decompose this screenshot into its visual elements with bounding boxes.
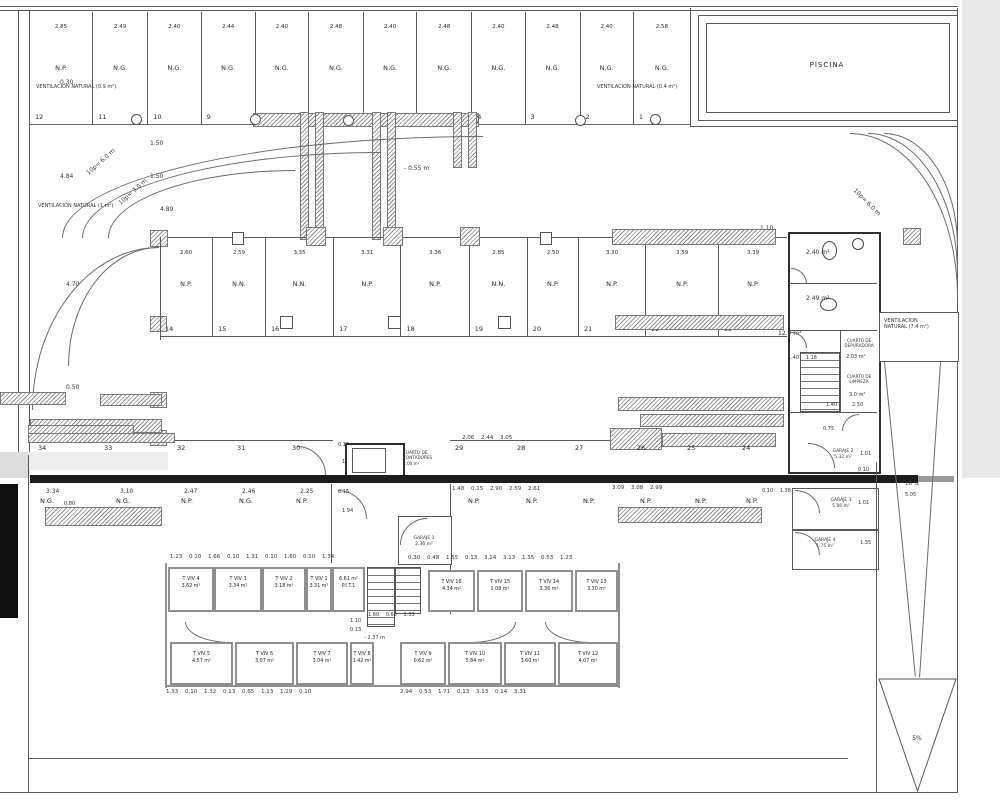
- stall-dim: 2.48: [309, 24, 363, 30]
- row3-number-28: 28: [517, 445, 525, 452]
- parking-space-7: 2.48N.G.7: [308, 12, 363, 124]
- room-label: T VIV 23.18 m²: [275, 577, 294, 591]
- vent-label-top-left: VENTILACION NATURAL (0.9 m²): [36, 84, 166, 90]
- dim: 0.10: [858, 468, 869, 473]
- left-wall-lower: [28, 455, 29, 792]
- pit-area: 6.61 m²: [339, 577, 358, 582]
- driveway-wall-left: [876, 462, 877, 792]
- column-circle: [343, 115, 354, 126]
- parking-space-10: 2.40N.G.10: [147, 12, 200, 124]
- parking-space-16: 3.35N.N.16: [265, 238, 333, 336]
- parking-space-15: 2.59N.N.15: [212, 238, 265, 336]
- row4-label: N.G.: [116, 498, 130, 505]
- dim-string: 2.94 0.53 1.71 0.13 3.13 0.14 3.31: [400, 690, 526, 696]
- column-square: [498, 316, 511, 329]
- parking-space-1: 2.58N.G.1: [633, 12, 690, 124]
- stall-dim: 2.58: [634, 24, 690, 30]
- stall-number: 11: [98, 113, 106, 121]
- wall-hatch: [100, 394, 162, 406]
- level-label: - 2.37 m: [364, 636, 385, 641]
- garaje3-name: GARAJE 3: [830, 498, 851, 503]
- column-square: [388, 316, 401, 329]
- dim: 1.40: [826, 403, 837, 408]
- sink-icon: [852, 238, 864, 250]
- storage-room-t-viv-8: T VIV 81.42 m²: [350, 642, 374, 685]
- row4-dim: 2.25: [300, 489, 313, 495]
- stall-dim: 2.40: [364, 24, 416, 30]
- stall-number: 16: [271, 325, 279, 333]
- stall-label: N.G.: [472, 64, 524, 72]
- ramp-arc-lower-2: [68, 247, 159, 366]
- parking-space-2: 2.40N.G.2: [580, 12, 633, 124]
- dim: 2.50: [852, 403, 863, 408]
- stall-dim: 2.85: [470, 250, 527, 256]
- cuarto-contadores-label: CUARTO DE CONTADORES 2.00 m²: [403, 450, 445, 466]
- corridor-door-arc: [470, 622, 516, 643]
- stall-label: N.N.: [213, 280, 265, 288]
- dim-string: 1.60 0.68 1.33: [368, 613, 415, 618]
- column-hatch: [150, 316, 167, 332]
- limp-line2: LIMPIEZA: [849, 379, 868, 384]
- piscina-label: PISCINA: [706, 62, 948, 69]
- room-area: 2.40 m²: [806, 250, 830, 256]
- column-hatch: [460, 227, 480, 246]
- column-square: [232, 232, 244, 245]
- column-circle: [575, 115, 586, 126]
- dim: 4.70: [66, 282, 79, 288]
- depuradora-label: CUARTO DE DEPURADORA: [842, 338, 876, 349]
- dep-line1: CUARTO DE: [847, 338, 872, 343]
- dim: 1.35: [860, 541, 871, 546]
- elevator-car: [352, 448, 386, 473]
- core-wall: [331, 484, 332, 563]
- wall-hatch: [618, 397, 784, 411]
- stall-dim: 2.40: [148, 24, 200, 30]
- row4-dim: 2.46: [242, 489, 255, 495]
- stall-number: 2: [586, 113, 590, 121]
- wall-hatch-top-row: [253, 113, 479, 127]
- stall-label: N.G.: [148, 64, 200, 72]
- dim-string: 1.48 0.15 2.90 2.59 2.61: [452, 487, 540, 493]
- wall-hatch: [612, 229, 776, 245]
- row4-label: N.P.: [695, 498, 707, 505]
- parking-row-top: 2.85N.P.122.49N.G.112.40N.G.102.44N.G.92…: [30, 12, 690, 125]
- row3-number-27: 27: [575, 445, 583, 452]
- pit-name: P.I.T.1: [342, 584, 356, 589]
- stall-label: N.P.: [401, 280, 468, 288]
- room-label: T VIV 124.07 m²: [578, 652, 598, 666]
- scan-margin-right: [962, 0, 1000, 478]
- stall-dim: 3.35: [266, 250, 333, 256]
- section-band: [30, 475, 918, 483]
- stall-label: N.G.: [526, 64, 580, 72]
- parking-space-9: 2.44N.G.9: [201, 12, 255, 124]
- dim: 1.10: [350, 619, 361, 624]
- slope-label-16: 16 %: [905, 482, 919, 488]
- vent74-line2: NATURAL (7.4 m²): [884, 324, 929, 330]
- dim-string: 3.09 3.08 2.99: [612, 486, 662, 492]
- row3-number-32: 32: [177, 445, 185, 452]
- stall-label: N.N.: [470, 280, 527, 288]
- room-area: 3.0 m²: [849, 393, 865, 398]
- frame-top-line: [0, 6, 958, 7]
- row4-label: N.P.: [181, 498, 193, 505]
- stall-number: 18: [406, 325, 414, 333]
- cuarto-area: 2.00 m²: [403, 461, 419, 466]
- row4-label: N.P.: [583, 498, 595, 505]
- stall-dim: 2.50: [528, 250, 578, 256]
- slope-label-5: 5%: [903, 736, 931, 742]
- room-label: T VIV 81.42 m²: [353, 652, 372, 666]
- stall-dim: 3.30: [579, 250, 645, 256]
- door-arc: [297, 446, 326, 475]
- garaje4-name: GARAJE 4: [814, 538, 835, 543]
- scan-black-block: [0, 484, 18, 618]
- storage-room-t-viv-6: T VIV 63.07 m²: [235, 642, 294, 685]
- stall-dim: 2.40: [256, 24, 308, 30]
- wall-hatch: [610, 428, 662, 450]
- row3-number-29: 29: [455, 445, 463, 452]
- storage-room-t-viv-13: T VIV 133.30 m²: [575, 570, 618, 612]
- parking-space-11: 2.49N.G.11: [92, 12, 147, 124]
- piscina-margin-left: [690, 8, 691, 127]
- column-square: [280, 316, 293, 329]
- parking-space-8: 2.40N.G.8: [255, 12, 308, 124]
- stall-label: N.P.: [160, 280, 212, 288]
- trastero-wall-right: [618, 563, 620, 688]
- stall-dim: 2.48: [417, 24, 471, 30]
- slope-dim: 5.05: [905, 493, 916, 498]
- stall-dim: 2.40: [581, 24, 633, 30]
- room-label: T VIV 143.36 m²: [539, 580, 559, 594]
- storage-room-t-viv-5: T VIV 54.57 m²: [170, 642, 233, 685]
- row4-label: N.P.: [468, 498, 480, 505]
- garaje3-label: GARAJE 3 5.00 m²: [820, 498, 862, 509]
- corridor-wall-left: [160, 237, 161, 340]
- stall-label: N.N.: [266, 280, 333, 288]
- stall-number: 15: [218, 325, 226, 333]
- row3-number-30: 30: [292, 445, 300, 452]
- stall-label: N.P.: [579, 280, 645, 288]
- storage-room-t-viv-7: T VIV 73.04 m²: [296, 642, 348, 685]
- storage-room-t-viv-4: T VIV 43.62 m²: [168, 567, 214, 612]
- wall-hatch: [28, 433, 175, 443]
- stall-label: N.P.: [30, 64, 92, 72]
- parking-space-4: 2.40N.G.4: [471, 12, 524, 124]
- stairwell-flight-right: [395, 567, 421, 614]
- room-area: 2.49 m²: [806, 296, 830, 302]
- stall-dim: 2.44: [202, 24, 255, 30]
- room-partition: [789, 330, 877, 331]
- stall-dim: 2.40: [472, 24, 524, 30]
- vent74-label: VENTILACION NATURAL (7.4 m²): [884, 318, 954, 331]
- stall-number: 3: [531, 113, 535, 121]
- storage-room-t-viv-15: T VIV 152.08 m²: [477, 570, 523, 612]
- dim: 0.13: [350, 628, 361, 633]
- lower-line: [28, 758, 848, 759]
- storage-room-t-viv-10: T VIV 105.84 m²: [448, 642, 502, 685]
- room-area: 2.03 m²: [846, 355, 866, 360]
- wall-hatch: [45, 507, 162, 526]
- dim: 0.50: [66, 385, 79, 391]
- room-label: T VIV 43.62 m²: [182, 577, 201, 591]
- room-label: T VIV 33.34 m²: [229, 577, 248, 591]
- pit-room: 6.61 m² P.I.T.1: [332, 567, 365, 612]
- stall-number: 17: [339, 325, 347, 333]
- storage-room-t-viv-16: T VIV 164.34 m²: [428, 570, 475, 612]
- row3-number-25: 25: [687, 445, 695, 452]
- stall-label: N.G.: [309, 64, 363, 72]
- column-circle: [250, 114, 261, 125]
- room-label: T VIV 54.57 m²: [192, 652, 211, 666]
- cuarto-line2: CONTADORES: [403, 455, 432, 460]
- frame-top-line-2: [0, 10, 958, 11]
- wall-hatch: [662, 433, 776, 447]
- column-hatch: [306, 227, 326, 246]
- stall-label: N.G.: [364, 64, 416, 72]
- dim-string: 1.33 0.10 1.32 0.13 0.65 1.13 1.29 0.10: [166, 690, 311, 696]
- stall-label: N.P.: [528, 280, 578, 288]
- dim: 1.01: [858, 501, 869, 506]
- row4-label: N.P.: [526, 498, 538, 505]
- stall-number: 12: [35, 113, 43, 121]
- garaje2-area: 5.32 m²: [834, 455, 852, 460]
- wall-hatch: [640, 414, 784, 427]
- room-label: T VIV 13.31 m²: [310, 577, 329, 591]
- row4-dim: 3.34: [46, 489, 59, 495]
- garage-floor-plan: PISCINA 2.85N.P.122.49N.G.112.40N.G.102.…: [0, 0, 1000, 800]
- stall-number: 20: [533, 325, 541, 333]
- parking-space-3: 2.48N.G.3: [525, 12, 580, 124]
- stall-label: N.G.: [581, 64, 633, 72]
- row3-number-34: 34: [38, 445, 46, 452]
- storage-room-t-viv-3: T VIV 33.34 m²: [214, 567, 262, 612]
- stall-label: N.P.: [334, 280, 400, 288]
- dim: 0.75: [823, 427, 834, 432]
- parking-space-6: 2.40N.G.6: [363, 12, 416, 124]
- stairwell-flight-left: [367, 567, 395, 627]
- limp-line1: CUARTO DE: [847, 374, 872, 379]
- section-band-grey: [918, 476, 954, 482]
- column-hatch: [903, 228, 921, 245]
- stall-dim: 3.59: [646, 250, 718, 256]
- row4-label: N.G.: [40, 498, 54, 505]
- storage-room-t-viv-2: T VIV 23.18 m²: [262, 567, 306, 612]
- row4-dim: 3.10: [120, 489, 133, 495]
- corridor-door-arc: [185, 622, 231, 643]
- storage-room-t-viv-1: T VIV 13.31 m²: [306, 567, 332, 612]
- scan-smudge: [28, 452, 168, 470]
- piscina-margin-bottom: [690, 126, 958, 127]
- room-label: T VIV 105.84 m²: [465, 652, 485, 666]
- door-arc: [338, 490, 367, 519]
- ramp-slope-label-outer: 10p= 6.0 m: [86, 148, 117, 176]
- row4-label: N.P.: [746, 498, 758, 505]
- row3-number-33: 33: [104, 445, 112, 452]
- parking-space-20: 2.50N.P.20: [527, 238, 578, 336]
- stall-dim: 3.39: [719, 250, 787, 256]
- dim: 4.89: [160, 207, 173, 213]
- vent-label-ramp: VENTILACION NATURAL (1 m²): [38, 203, 168, 209]
- column-square: [540, 232, 552, 245]
- stall-label: N.G.: [417, 64, 471, 72]
- room-label: T VIV 113.60 m²: [520, 652, 540, 666]
- room-label: T VIV 73.04 m²: [313, 652, 332, 666]
- dim-wall: 0.30: [60, 80, 73, 86]
- dim-string: 1.23 0.10 1.66 0.10 1.31 0.10 1.60 0.10 …: [170, 555, 334, 561]
- column-circle: [650, 114, 661, 125]
- stall-dim: 2.85: [30, 24, 92, 30]
- stall-label: N.P.: [646, 280, 718, 288]
- room-label: T VIV 133.30 m²: [586, 580, 606, 594]
- row4-label: N.P.: [640, 498, 652, 505]
- room-label: T VIV 90.62 m²: [414, 652, 433, 666]
- vent74-line1: VENTILACION: [884, 318, 918, 324]
- storage-room-t-viv-11: T VIV 113.60 m²: [504, 642, 556, 685]
- row4-label: N.G.: [239, 498, 253, 505]
- wall-hatch: [618, 507, 762, 523]
- storage-room-t-viv-14: T VIV 143.36 m²: [525, 570, 573, 612]
- room-partition: [789, 412, 877, 413]
- cuarto-line1: CUARTO DE: [403, 450, 428, 455]
- stall-number: 10: [153, 113, 161, 121]
- stall-dim: 2.60: [160, 250, 212, 256]
- parking-space-18: 3.36N.P.18: [400, 238, 468, 336]
- row3-number-24: 24: [742, 445, 750, 452]
- stall-number: 19: [475, 325, 483, 333]
- parking-space-5: 2.48N.G.5: [416, 12, 471, 124]
- dep-line2: DEPURADORA: [844, 343, 873, 348]
- stall-label: N.P.: [719, 280, 787, 288]
- stall-label: N.G.: [256, 64, 308, 72]
- dim-string: 2.06 2.44 3.05: [462, 436, 512, 442]
- garaje2-name: GARAJE 2: [832, 449, 853, 454]
- trastero-wall-bottom: [165, 685, 620, 687]
- stall-label: N.G.: [93, 64, 147, 72]
- parking-space-12: 2.85N.P.12: [30, 12, 92, 124]
- ramp-edge-line: [884, 362, 916, 677]
- dim: 1.50: [150, 174, 163, 180]
- wall-hatch: [0, 392, 66, 405]
- pit-label: 6.61 m² P.I.T.1: [339, 577, 358, 591]
- limpieza-label: CUARTO DE LIMPIEZA: [843, 374, 875, 385]
- ramp-right-arc-inner: [884, 133, 958, 246]
- room-partition-v: [840, 330, 841, 412]
- stall-number: 9: [207, 113, 211, 121]
- stall-dim: 2.48: [526, 24, 580, 30]
- stall-dim: 3.31: [334, 250, 400, 256]
- room-label: T VIV 152.08 m²: [490, 580, 510, 594]
- room-label: T VIV 63.07 m²: [255, 652, 274, 666]
- stall-label: N.G.: [202, 64, 255, 72]
- stall-number: 21: [584, 325, 592, 333]
- dim: 1.01: [860, 452, 871, 457]
- dim: 1.50: [150, 141, 163, 147]
- frame-left-line: [18, 10, 19, 457]
- row3-number-31: 31: [237, 445, 245, 452]
- storage-room-t-viv-12: T VIV 124.07 m²: [558, 642, 618, 685]
- stall-dim: 2.49: [93, 24, 147, 30]
- corridor-door-arc: [545, 622, 591, 643]
- row3-number-26: 26: [637, 445, 645, 452]
- bottom-line: [0, 792, 958, 793]
- scan-smudge-left: [0, 452, 30, 478]
- column-hatch: [383, 227, 403, 246]
- parking-space-14: 2.60N.P.14: [160, 238, 212, 336]
- dim-string: 1.40 1.18: [788, 356, 817, 361]
- wall-hatch: [615, 315, 784, 330]
- stall-dim: 3.36: [401, 250, 468, 256]
- stall-label: N.G.: [634, 64, 690, 72]
- garaje3-area: 5.00 m²: [832, 504, 850, 509]
- stall-dim: 2.59: [213, 250, 265, 256]
- vent-label-top-right: VENTILACION NATURAL (0.4 m²): [597, 84, 707, 90]
- column-hatch: [150, 230, 168, 247]
- row4-dim: 2.47: [184, 489, 197, 495]
- dim-string: 0.30 0.48 1.55 0.13 3.14 3.13 1.35 0.53 …: [408, 556, 572, 562]
- column-circle: [131, 114, 142, 125]
- room-label: T VIV 164.34 m²: [441, 580, 461, 594]
- trastero-wall-left: [165, 563, 167, 688]
- storage-room-t-viv-9: T VIV 90.62 m²: [400, 642, 446, 685]
- stall-number: 1: [639, 113, 643, 121]
- row4-label: N.P.: [296, 498, 308, 505]
- dim: 4.84: [60, 174, 73, 180]
- ramp-edge-line: [919, 362, 941, 677]
